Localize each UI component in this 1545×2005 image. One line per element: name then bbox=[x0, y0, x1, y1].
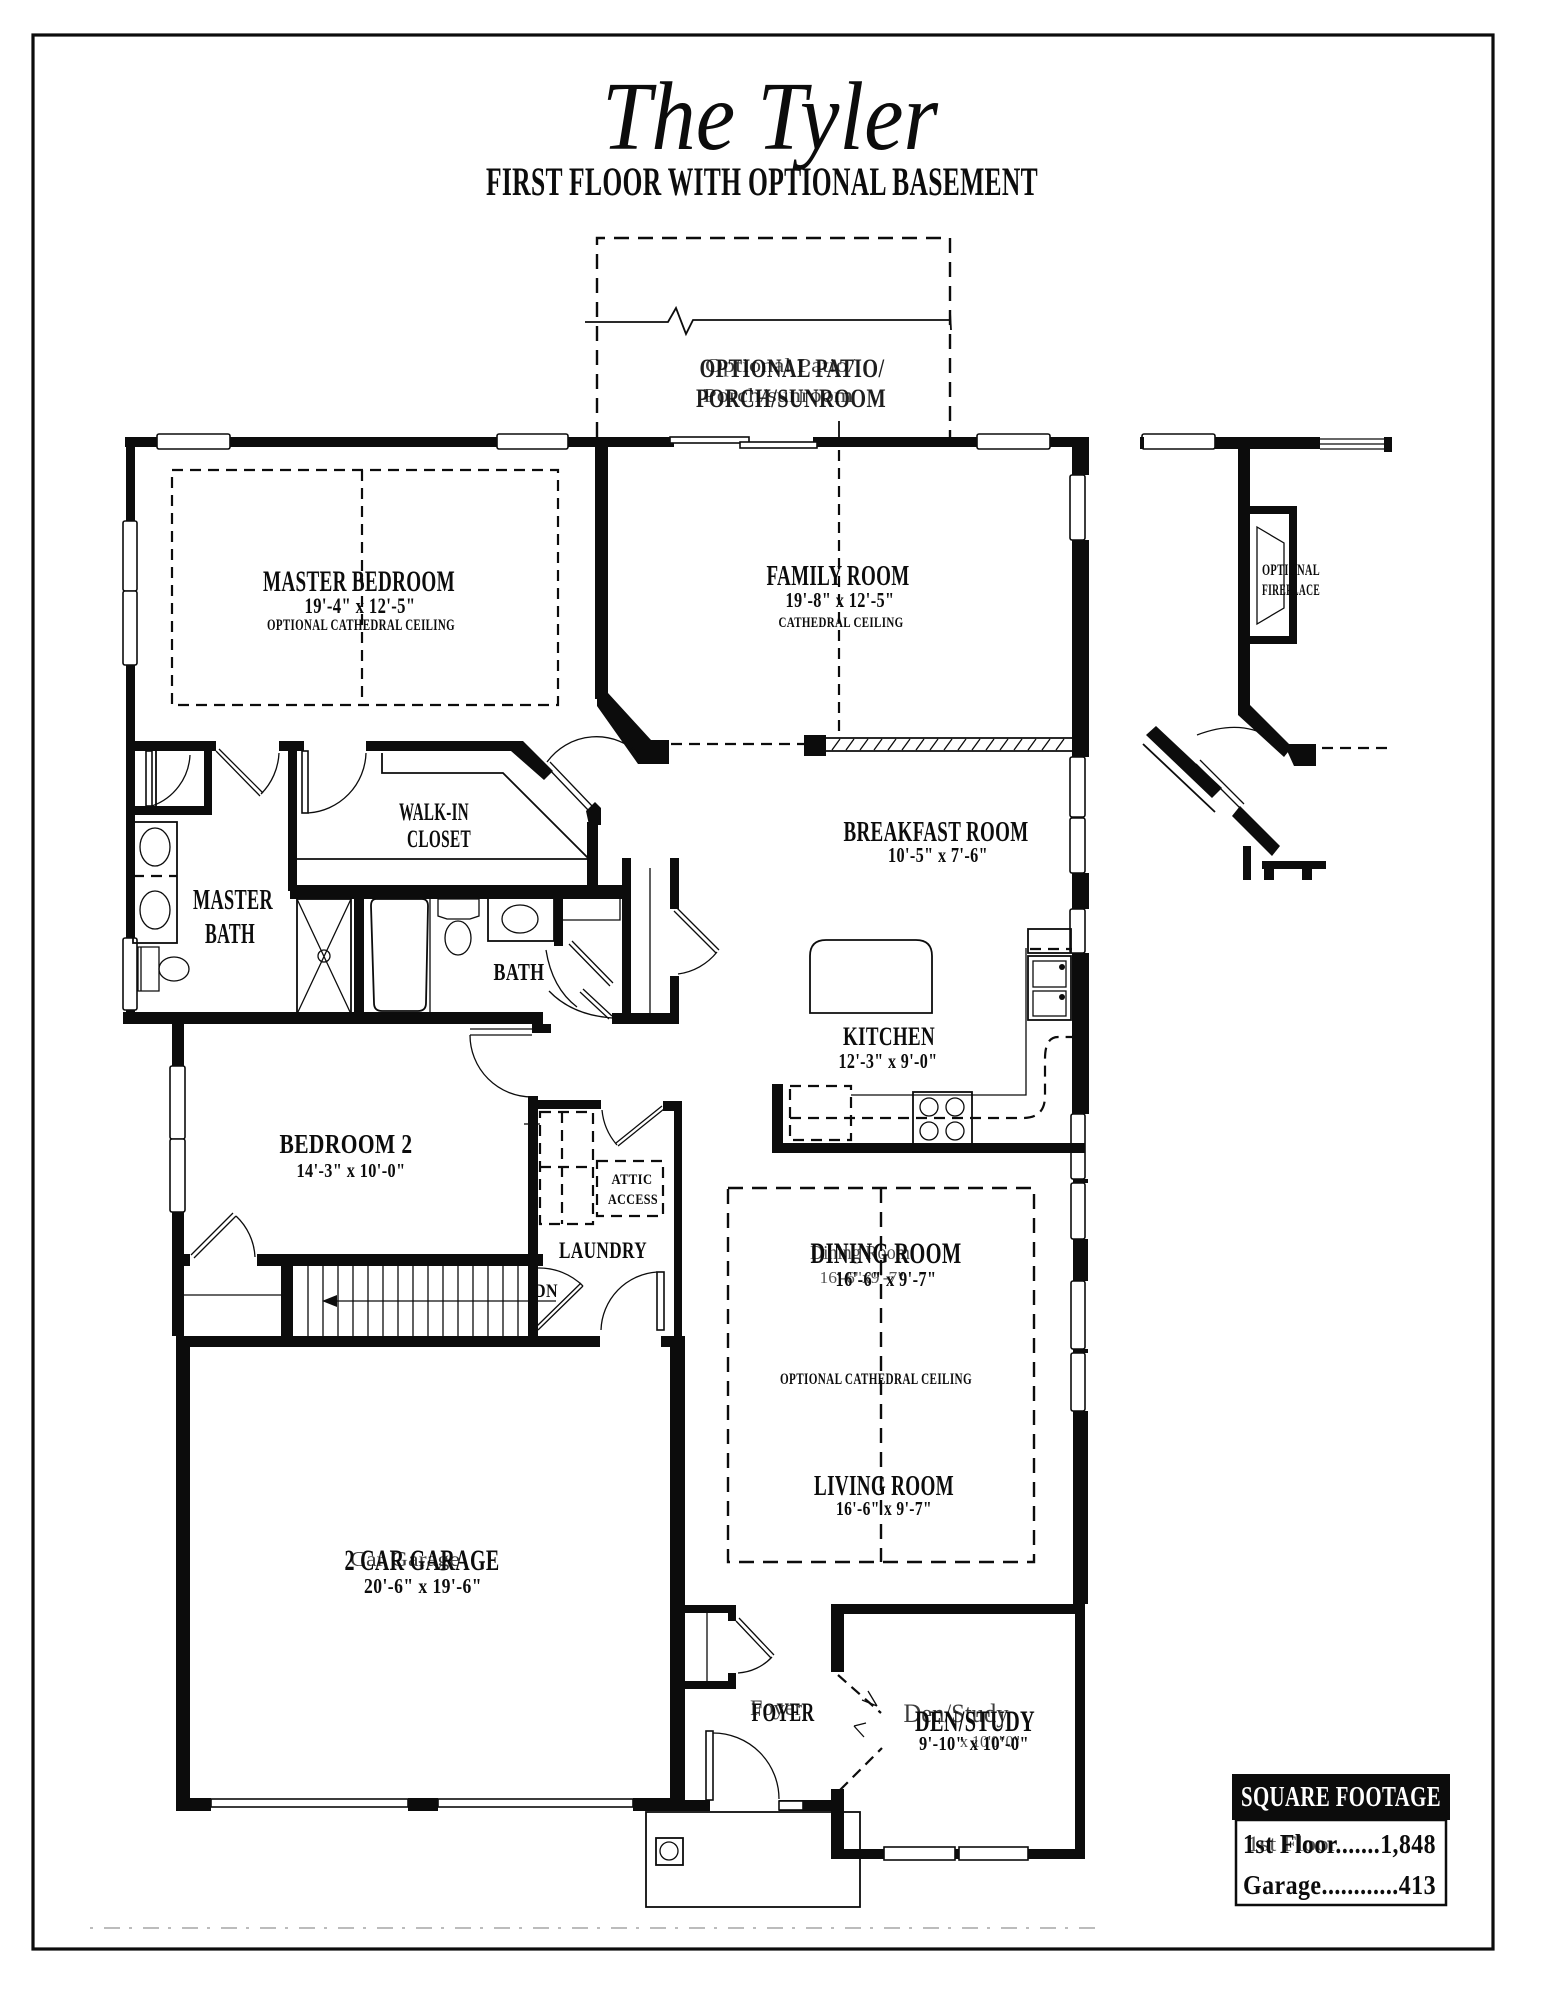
svg-text:20'-6" x 19'-6": 20'-6" x 19'-6" bbox=[364, 1574, 482, 1598]
svg-text:ACCESS: ACCESS bbox=[608, 1192, 658, 1208]
svg-text:CATHEDRAL CEILING: CATHEDRAL CEILING bbox=[779, 615, 904, 631]
svg-text:LAUNDRY: LAUNDRY bbox=[559, 1238, 647, 1263]
svg-text:Foyer: Foyer bbox=[750, 1695, 803, 1720]
svg-text:KITCHEN: KITCHEN bbox=[843, 1022, 935, 1051]
svg-text:The Tyler: The Tyler bbox=[602, 63, 939, 170]
svg-text:FIREPLACE: FIREPLACE bbox=[1262, 582, 1320, 599]
svg-text:16'-6"x9'-7": 16'-6"x9'-7" bbox=[820, 1268, 905, 1287]
svg-text:Optional Patio/: Optional Patio/ bbox=[705, 355, 856, 377]
svg-text:SQUARE FOOTAGE: SQUARE FOOTAGE bbox=[1241, 1782, 1441, 1813]
svg-text:Garage............413: Garage............413 bbox=[1243, 1870, 1436, 1900]
svg-text:x 10'0"0": x 10'0"0" bbox=[960, 1732, 1020, 1751]
svg-text:BEDROOM 2: BEDROOM 2 bbox=[280, 1129, 413, 1159]
svg-text:Dining Room: Dining Room bbox=[810, 1242, 910, 1264]
svg-text:WALK-IN: WALK-IN bbox=[399, 799, 469, 826]
svg-text:OPTIONAL CATHEDRAL CEILING: OPTIONAL CATHEDRAL CEILING bbox=[780, 1371, 972, 1388]
svg-text:19'-4" x 12'-5": 19'-4" x 12'-5" bbox=[305, 593, 416, 618]
svg-text:OPTIONAL: OPTIONAL bbox=[1262, 562, 1320, 579]
svg-text:19'-8" x 12'-5": 19'-8" x 12'-5" bbox=[786, 588, 895, 612]
svg-text:Porch/sunroom: Porch/sunroom bbox=[703, 385, 854, 407]
svg-text:FIRST FLOOR WITH OPTIONAL BASE: FIRST FLOOR WITH OPTIONAL BASEMENT bbox=[486, 159, 1038, 204]
svg-text:16'-6" x 9'-7": 16'-6" x 9'-7" bbox=[836, 1498, 932, 1520]
svg-text:10'-5" x 7'-6": 10'-5" x 7'-6" bbox=[888, 843, 988, 867]
svg-text:OPTIONAL CATHEDRAL CEILING: OPTIONAL CATHEDRAL CEILING bbox=[267, 617, 455, 634]
svg-text:Den/Study: Den/Study bbox=[904, 1699, 1009, 1728]
svg-text:Car Garage: Car Garage bbox=[350, 1547, 460, 1571]
svg-text:12'-3" x 9'-0": 12'-3" x 9'-0" bbox=[839, 1049, 938, 1073]
svg-text:ATTIC: ATTIC bbox=[612, 1172, 653, 1188]
svg-text:1st Floor: 1st Floor bbox=[1247, 1831, 1338, 1856]
svg-text:CLOSET: CLOSET bbox=[407, 826, 471, 853]
svg-text:14'-3" x 10'-0": 14'-3" x 10'-0" bbox=[297, 1160, 406, 1182]
svg-text:BATH: BATH bbox=[205, 919, 255, 950]
svg-text:MASTER: MASTER bbox=[193, 885, 273, 916]
svg-text:BATH: BATH bbox=[494, 960, 545, 986]
